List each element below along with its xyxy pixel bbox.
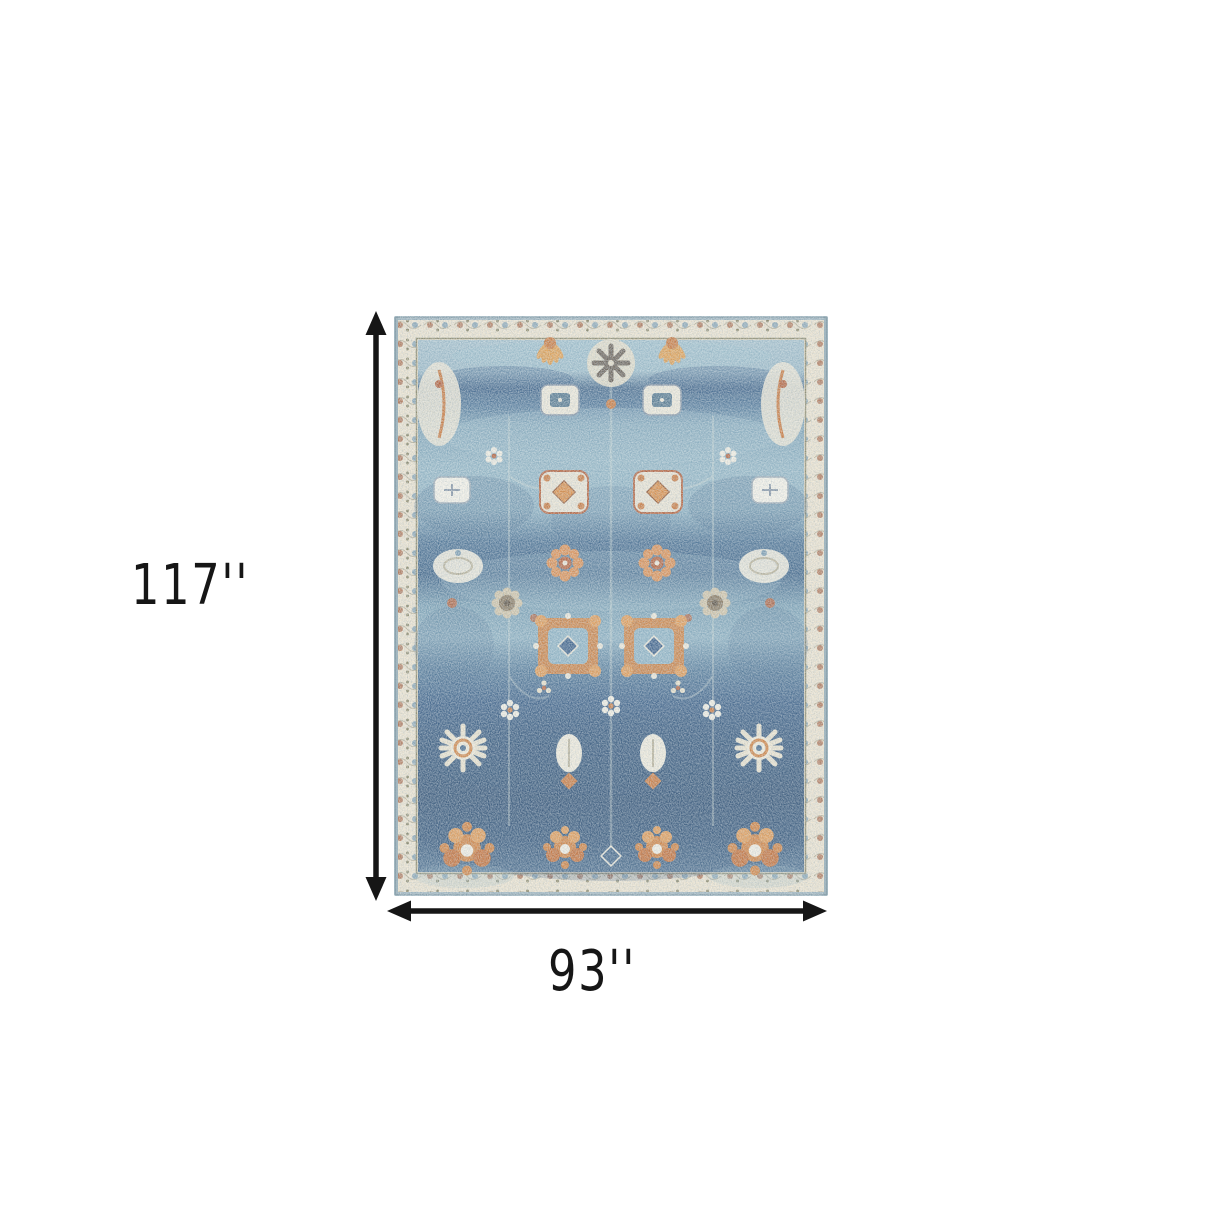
width-arrow-head-right: [803, 901, 827, 922]
rug-product-image: [394, 316, 828, 896]
height-dimension-label: 117'': [131, 558, 249, 614]
width-arrow-head-left: [387, 901, 411, 922]
width-dimension-label: 93'': [528, 944, 656, 1000]
width-dimension-arrow: [382, 894, 832, 928]
rug-art: [394, 316, 828, 896]
dimension-diagram-canvas: 117'' 93'': [0, 0, 1214, 1214]
height-arrow-head-top: [366, 311, 387, 335]
height-dimension-arrow: [356, 306, 396, 906]
